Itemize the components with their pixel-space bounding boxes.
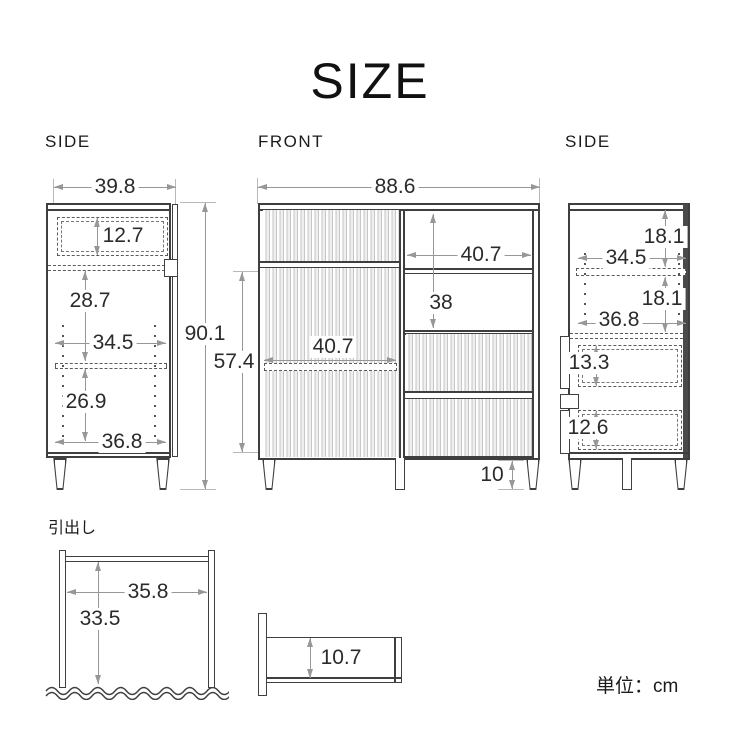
dim-label: 88.6 [372, 176, 419, 198]
side-left-divider [48, 270, 170, 271]
dim-label: 33.5 [77, 608, 124, 630]
dim-label: 34.5 [603, 247, 650, 269]
dim-label: 57.4 [211, 351, 258, 373]
side-right-shelf [576, 268, 686, 276]
ext-line [53, 179, 54, 204]
ext-line [539, 178, 540, 204]
leg-center [395, 458, 405, 490]
drawer-section-label: 引出し [48, 514, 96, 538]
ext-line [175, 179, 176, 204]
dim-label: 12.6 [565, 417, 612, 439]
dim-label: 12.7 [100, 225, 147, 247]
front-drawer1-fluted [406, 334, 532, 391]
front-drawer1-bottom [405, 391, 533, 393]
side-left-top-board [48, 209, 169, 211]
dim-side-left-drawer-height [97, 218, 98, 255]
dim-front-leg-height [512, 461, 513, 489]
ext-line [180, 202, 216, 203]
drawer-front-edge [59, 556, 215, 562]
break-line-wave [45, 686, 229, 700]
shelf-pin-holes [154, 325, 156, 438]
side-right-top-board [570, 209, 688, 211]
label-side-left: SIDE [45, 132, 91, 152]
dim-label: 36.8 [596, 309, 643, 331]
dim-label: 35.8 [125, 581, 172, 603]
drawer-front-panel [258, 613, 267, 696]
side-right-divider [570, 338, 683, 339]
leg [674, 458, 688, 490]
label-side-right: SIDE [565, 132, 611, 152]
dim-drawer-inner-height [310, 638, 311, 678]
front-drawer2-fluted [406, 399, 532, 456]
dim-label: 13.3 [566, 352, 613, 374]
dim-label: 10 [477, 464, 506, 486]
ext-line [233, 271, 258, 272]
dim-label: 39.8 [92, 176, 139, 198]
dim-label: 18.1 [639, 288, 686, 310]
leg-center [622, 458, 632, 490]
dim-label: 90.1 [182, 323, 229, 345]
dim-front-door-width [264, 360, 396, 361]
dim-label: 26.9 [63, 391, 110, 413]
side-left-handle [164, 259, 178, 277]
front-hidden-shelf [264, 363, 397, 371]
size-diagram: SIZE SIDE FRONT SIDE 39.8 12.7 28.7 34.5… [0, 0, 740, 740]
side-right-divider [570, 333, 683, 334]
dim-label: 18.1 [641, 226, 688, 248]
front-open-bottom [404, 330, 533, 332]
side-left-divider [48, 265, 170, 266]
front-top-drawer-fluted [263, 210, 399, 261]
label-front: FRONT [258, 132, 324, 152]
dim-label: 28.7 [67, 290, 114, 312]
dim-label: 10.7 [318, 647, 365, 669]
unit-note: 単位：cm [596, 671, 678, 698]
page-title: SIZE [0, 52, 740, 110]
side-right-handle [560, 394, 579, 409]
leg [156, 458, 170, 490]
drawer-back-panel [394, 638, 396, 682]
ext-line [180, 489, 216, 490]
front-shelf [404, 268, 533, 270]
side-left-front-panel [172, 204, 178, 457]
drawer-side-wall [59, 550, 66, 688]
ext-line [257, 178, 258, 204]
front-shelf [404, 273, 533, 275]
dim-label: 38 [426, 292, 455, 314]
front-drawer2-bottom [405, 456, 533, 458]
side-right-bottom-board [570, 452, 688, 454]
ext-line [233, 452, 258, 453]
dim-front-total-height [205, 203, 206, 489]
ext-line [498, 489, 524, 490]
leg [53, 458, 67, 490]
drawer-bottom-board [267, 677, 401, 679]
dim-side-left-upper-height [85, 271, 86, 361]
dim-label: 40.7 [310, 336, 357, 358]
front-drawer-door-gap [260, 261, 400, 263]
side-left-shelf [55, 363, 167, 369]
dim-label: 36.8 [99, 431, 146, 453]
leg [568, 458, 582, 490]
dim-label: 34.5 [90, 332, 137, 354]
leg [262, 458, 276, 490]
drawer-side-wall [208, 550, 215, 688]
front-center-divider [399, 209, 401, 458]
dim-label: 40.7 [458, 244, 505, 266]
leg [526, 458, 540, 490]
